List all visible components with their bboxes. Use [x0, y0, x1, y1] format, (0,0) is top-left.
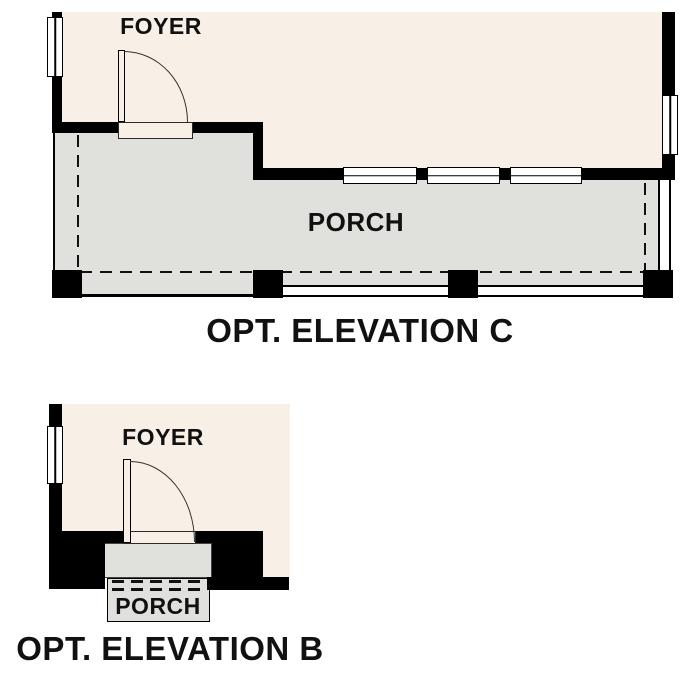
porch-left-edge-line-c — [53, 133, 55, 270]
porch-step-dash-2-b — [112, 588, 205, 591]
wall-strip-bottom-right-b — [207, 577, 289, 590]
porch-label-b: PORCH — [108, 595, 208, 618]
window-front-3-c — [510, 167, 582, 184]
porch-post-1-c — [52, 270, 82, 298]
wall-top-left-stub-b — [49, 404, 62, 426]
wall-right-upper-c — [662, 12, 675, 95]
foyer-label-b: FOYER — [103, 426, 223, 449]
window-left-c — [47, 17, 63, 77]
porch-step-dash-1-b — [112, 580, 205, 583]
wall-left-c — [52, 75, 62, 122]
porch-floor-c-left — [53, 133, 263, 294]
wall-front-left-of-door-b — [105, 531, 123, 543]
porch-dashed-line-bottom-c — [80, 271, 645, 273]
window-front-1-c — [343, 167, 417, 184]
porch-dashed-line-left-c — [77, 135, 79, 272]
porch-railing-bay2-c — [283, 285, 448, 297]
porch-dashed-line-right-c — [644, 183, 646, 272]
foyer-floor-c-right — [263, 122, 662, 170]
wall-block-right-b — [212, 531, 263, 577]
porch-post-2-c — [253, 270, 283, 298]
caption-elevation-b: OPT. ELEVATION B — [0, 630, 340, 668]
floorplan-canvas: FOYER PORCH OPT. ELEVATION C FOYER PORCH… — [0, 0, 687, 687]
foyer-floor-b-right — [263, 532, 290, 577]
porch-post-3-c — [448, 270, 478, 298]
door-threshold-c — [118, 122, 193, 139]
wall-right-lower-c — [662, 155, 675, 180]
window-left-b — [47, 426, 63, 484]
wall-corner-bottom-left-b — [49, 531, 105, 589]
wall-front-right-of-door-b — [196, 531, 212, 543]
porch-step-edge-line-c — [53, 294, 283, 297]
porch-railing-bay3-c — [478, 285, 643, 297]
wall-left-b — [49, 484, 62, 532]
porch-post-4-c — [643, 270, 673, 298]
porch-label-c: PORCH — [296, 209, 416, 235]
window-right-c — [662, 95, 678, 155]
porch-railing-right-c — [658, 180, 671, 270]
foyer-label-c: FOYER — [101, 15, 221, 38]
porch-stoop-b — [102, 543, 212, 578]
caption-elevation-c: OPT. ELEVATION C — [60, 312, 660, 350]
window-front-2-c — [427, 167, 500, 184]
